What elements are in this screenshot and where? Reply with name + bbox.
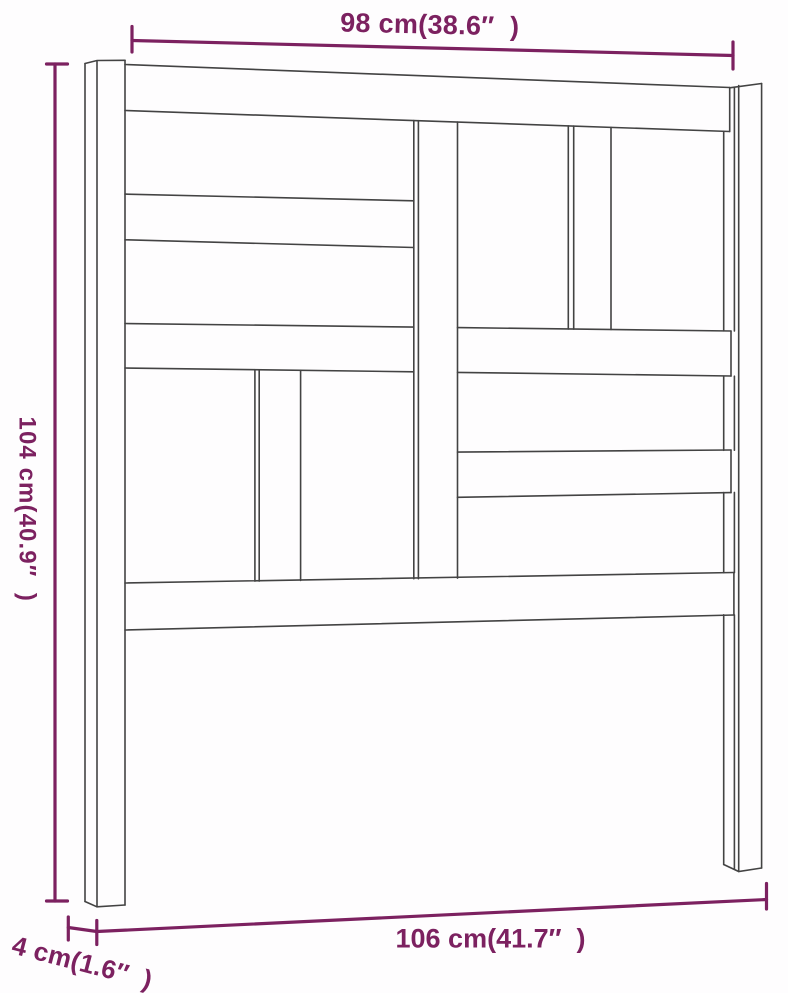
svg-text:106 cm(41.7″ ): 106 cm(41.7″ ) [396,924,586,954]
svg-text:4 cm(1.6″ ): 4 cm(1.6″ ) [9,930,156,993]
svg-text:98 cm(38.6″ ): 98 cm(38.6″ ) [340,8,520,42]
svg-text:104 cm(40.9″ ): 104 cm(40.9″ ) [14,417,41,602]
